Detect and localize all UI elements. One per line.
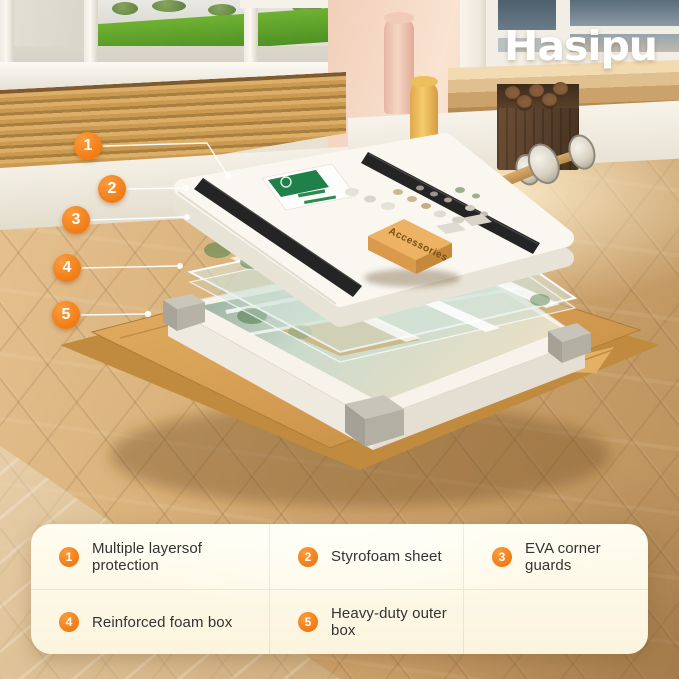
legend-label-3: EVA corner guards [525, 540, 648, 574]
legend-item-2: 2 Styrofoam sheet [269, 524, 463, 589]
brand-logo: Hasipu [504, 22, 657, 70]
legend-card: 1 Multiple layersof protection 2 Styrofo… [31, 524, 648, 654]
legend-badge-1: 1 [59, 547, 79, 567]
legend-label-1: Multiple layersof protection [92, 540, 269, 574]
legend-label-2: Styrofoam sheet [331, 548, 442, 565]
callout-number: 4 [63, 259, 72, 277]
legend-number: 3 [499, 550, 506, 564]
legend-item-1: 1 Multiple layersof protection [31, 524, 269, 589]
legend-number: 2 [305, 550, 312, 564]
legend-badge-2: 2 [298, 547, 318, 567]
legend-badge-5: 5 [298, 612, 318, 632]
legend-number: 5 [305, 615, 312, 629]
legend-number: 4 [66, 615, 73, 629]
legend-badge-4: 4 [59, 612, 79, 632]
callout-marker-5: 5 [52, 301, 80, 329]
legend-empty-cell [463, 589, 648, 654]
callout-marker-2: 2 [98, 175, 126, 203]
callout-marker-1: 1 [74, 132, 102, 160]
callout-number: 2 [108, 180, 117, 198]
legend-number: 1 [66, 550, 73, 564]
legend-label-4: Reinforced foam box [92, 614, 232, 631]
callout-number: 1 [84, 137, 93, 155]
legend-item-4: 4 Reinforced foam box [31, 589, 269, 654]
legend-item-5: 5 Heavy-duty outer box [269, 589, 463, 654]
product-packaging-infographic: Accessories 1 2 3 4 5 Hasipu 1 Multiple … [0, 0, 679, 679]
callout-marker-3: 3 [62, 206, 90, 234]
callout-marker-4: 4 [53, 254, 81, 282]
callout-number: 5 [62, 306, 71, 324]
callout-number: 3 [72, 211, 81, 229]
legend-badge-3: 3 [492, 547, 512, 567]
legend-label-5: Heavy-duty outer box [331, 605, 463, 639]
legend-item-3: 3 EVA corner guards [463, 524, 648, 589]
